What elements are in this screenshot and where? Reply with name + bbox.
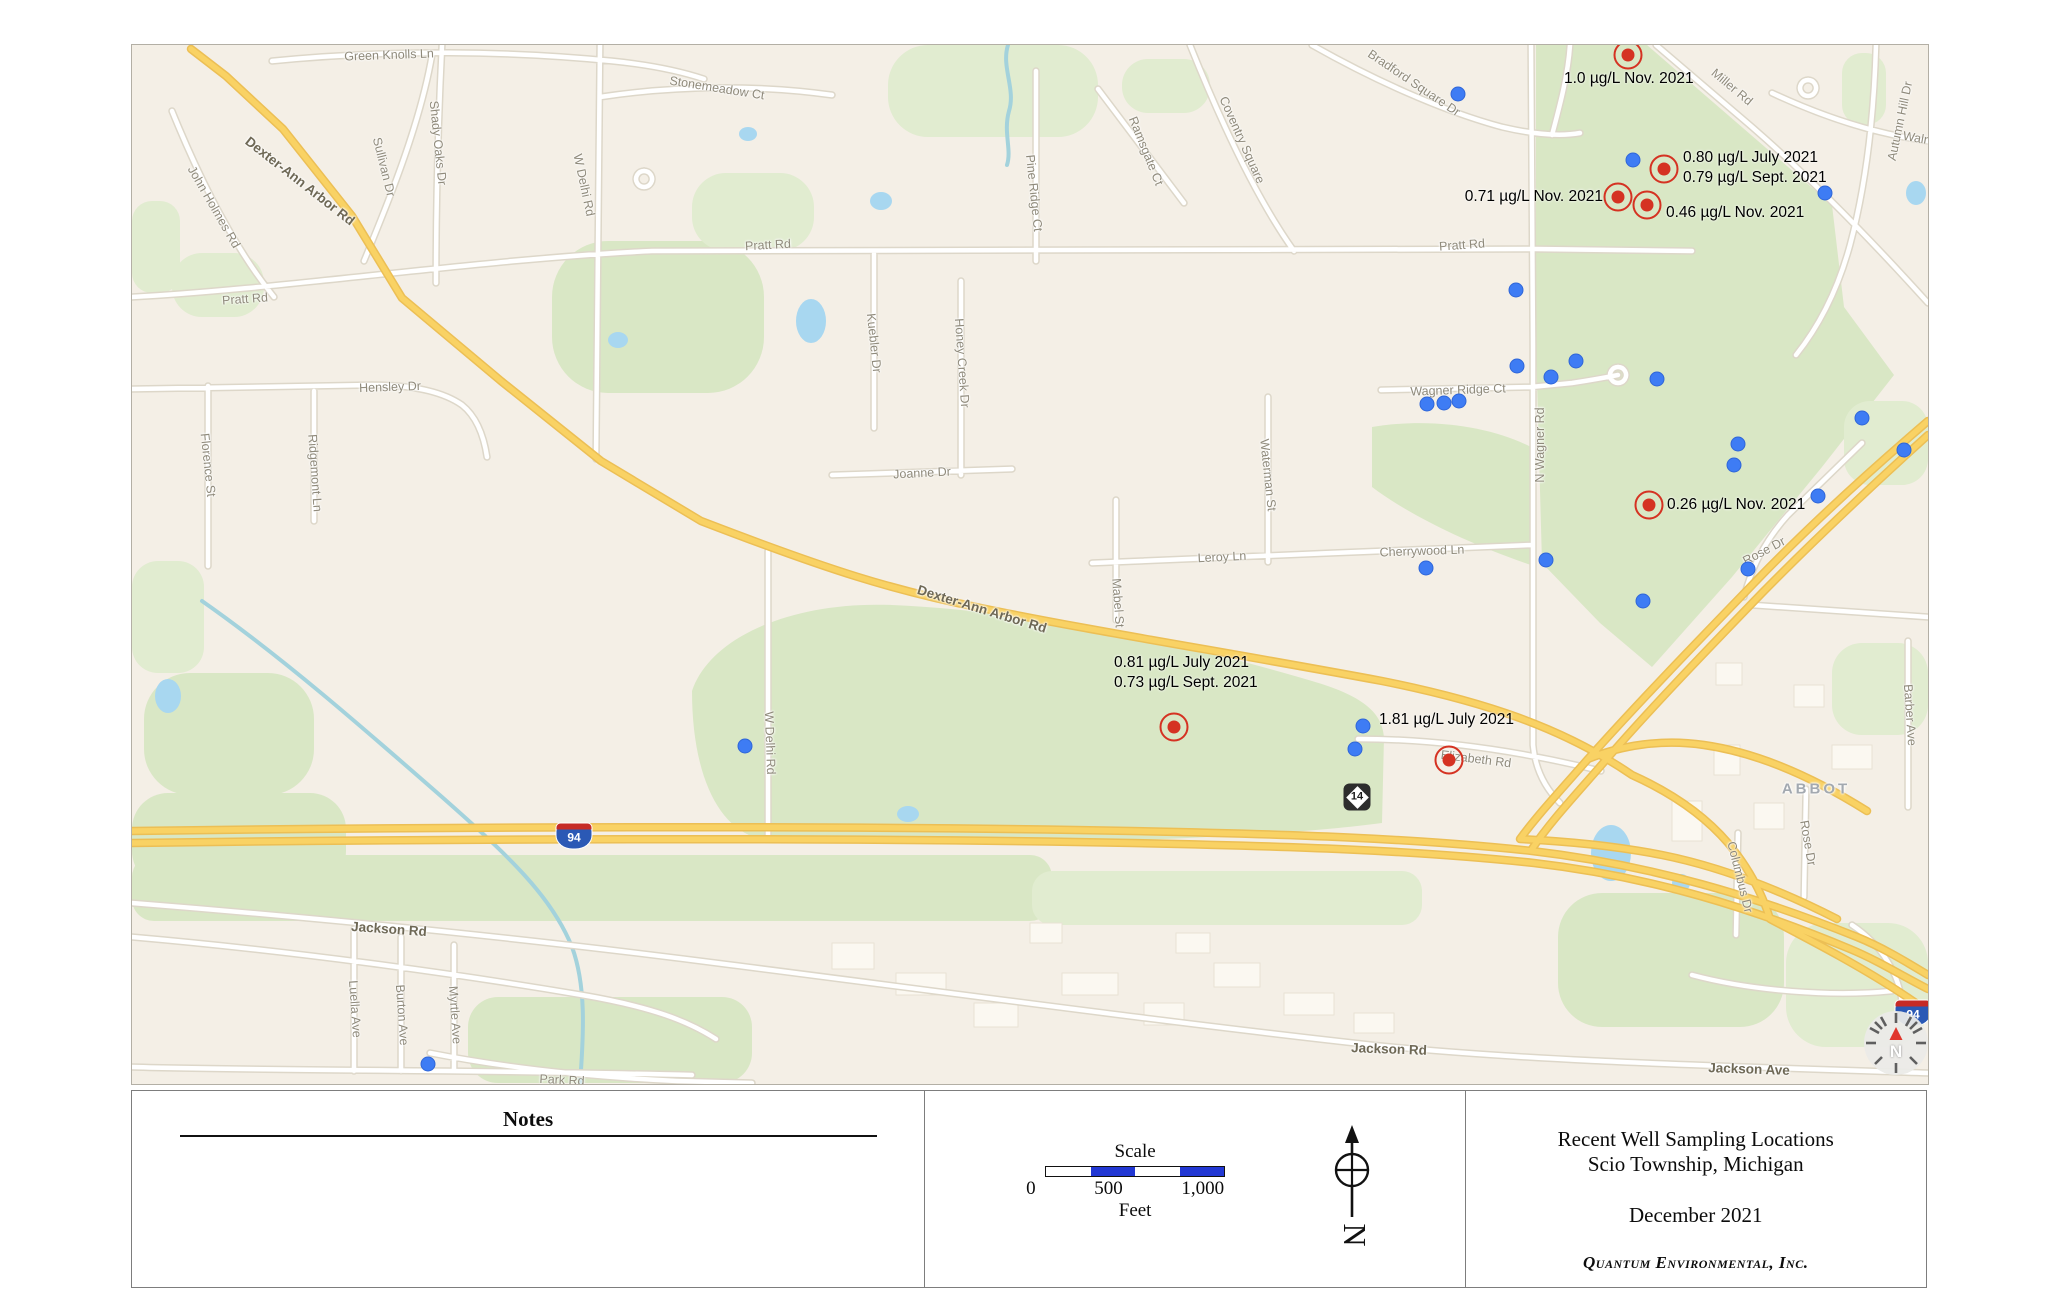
north-letter: N xyxy=(1337,1223,1373,1246)
sample-annotation: 1.81 µg/L July 2021 xyxy=(1379,710,1514,730)
scale-bar xyxy=(1045,1166,1225,1177)
well-dot xyxy=(1897,443,1912,458)
scale-title: Scale xyxy=(1035,1141,1235,1163)
well-dot xyxy=(1419,561,1434,576)
well-dot xyxy=(738,739,753,754)
well-dot xyxy=(421,1057,436,1072)
well-dot xyxy=(1650,372,1665,387)
well-dot xyxy=(1348,742,1363,757)
well-dot xyxy=(1452,394,1467,409)
well-dot xyxy=(1727,458,1742,473)
scale-segment xyxy=(1180,1167,1225,1176)
well-dot xyxy=(1626,153,1641,168)
well-dot xyxy=(1636,594,1651,609)
scale-section: Scale 0 500 1,000 Feet xyxy=(924,1091,1464,1287)
notes-underline xyxy=(180,1135,877,1137)
well-dot xyxy=(1741,562,1756,577)
shield-number: 14 xyxy=(1344,784,1371,811)
well-dot xyxy=(1811,489,1826,504)
well-dot xyxy=(1855,411,1870,426)
scale-tick: 500 xyxy=(1094,1178,1123,1200)
scale-ticks: 0 500 1,000 xyxy=(1026,1178,1224,1200)
sample-dot xyxy=(1168,721,1181,734)
scale-segment xyxy=(1135,1167,1180,1176)
sample-annotation: 0.81 µg/L July 20210.73 µg/L Sept. 2021 xyxy=(1114,653,1258,693)
well-dot xyxy=(1356,719,1371,734)
title-block: Recent Well Sampling Locations Scio Town… xyxy=(1465,1091,1926,1287)
sample-dot xyxy=(1641,199,1654,212)
well-dot xyxy=(1451,87,1466,102)
sample-annotation: 0.80 µg/L July 20210.79 µg/L Sept. 2021 xyxy=(1683,148,1827,188)
scale-tick: 1,000 xyxy=(1181,1178,1224,1200)
sample-dot xyxy=(1643,499,1656,512)
map-legend-panel: Notes Scale 0 500 1,000 Feet xyxy=(131,1090,1927,1288)
figure-date: December 2021 xyxy=(1466,1203,1926,1228)
sample-annotation: 1.0 µg/L Nov. 2021 xyxy=(1564,69,1694,89)
sample-dot xyxy=(1612,191,1625,204)
sample-dot xyxy=(1658,163,1671,176)
well-dot xyxy=(1510,359,1525,374)
shield-number: 94 xyxy=(556,830,593,850)
well-dot xyxy=(1544,370,1559,385)
sample-annotation: 0.46 µg/L Nov. 2021 xyxy=(1666,203,1804,223)
sample-annotation: 0.26 µg/L Nov. 2021 xyxy=(1667,495,1805,515)
figure-title-line1: Recent Well Sampling Locations xyxy=(1466,1127,1926,1152)
sample-dot xyxy=(1622,49,1635,62)
sample-annotation: 0.71 µg/L Nov. 2021 xyxy=(1465,187,1603,207)
map-canvas[interactable]: Green Knolls LnStonemeadow CtShady Oaks … xyxy=(131,44,1929,1085)
scale-tick: 0 xyxy=(1026,1178,1036,1200)
well-dot xyxy=(1539,553,1554,568)
interstate-94-shield: 94 xyxy=(556,823,593,850)
scale-segment xyxy=(1091,1167,1136,1176)
well-dot xyxy=(1731,437,1746,452)
notes-section: Notes xyxy=(132,1091,924,1287)
scale-bar-block: Scale 0 500 1,000 Feet xyxy=(1035,1141,1235,1222)
well-dot xyxy=(1420,397,1435,412)
well-dot xyxy=(1569,354,1584,369)
route-14-shield: 14 xyxy=(1344,784,1371,811)
compass-n-label: N xyxy=(1890,1042,1902,1061)
compass-icon[interactable]: N xyxy=(1863,1010,1929,1076)
north-arrow-icon: N xyxy=(1321,1125,1383,1255)
scale-segment xyxy=(1046,1167,1091,1176)
well-dot xyxy=(1509,283,1524,298)
report-figure-page: Green Knolls LnStonemeadow CtShady Oaks … xyxy=(0,0,2048,1303)
sample-dot xyxy=(1443,754,1456,767)
scale-unit: Feet xyxy=(1035,1200,1235,1222)
notes-heading: Notes xyxy=(132,1107,924,1132)
well-dot xyxy=(1437,396,1452,411)
company-name: Quantum Environmental, Inc. xyxy=(1466,1253,1926,1273)
figure-title-line2: Scio Township, Michigan xyxy=(1466,1152,1926,1177)
